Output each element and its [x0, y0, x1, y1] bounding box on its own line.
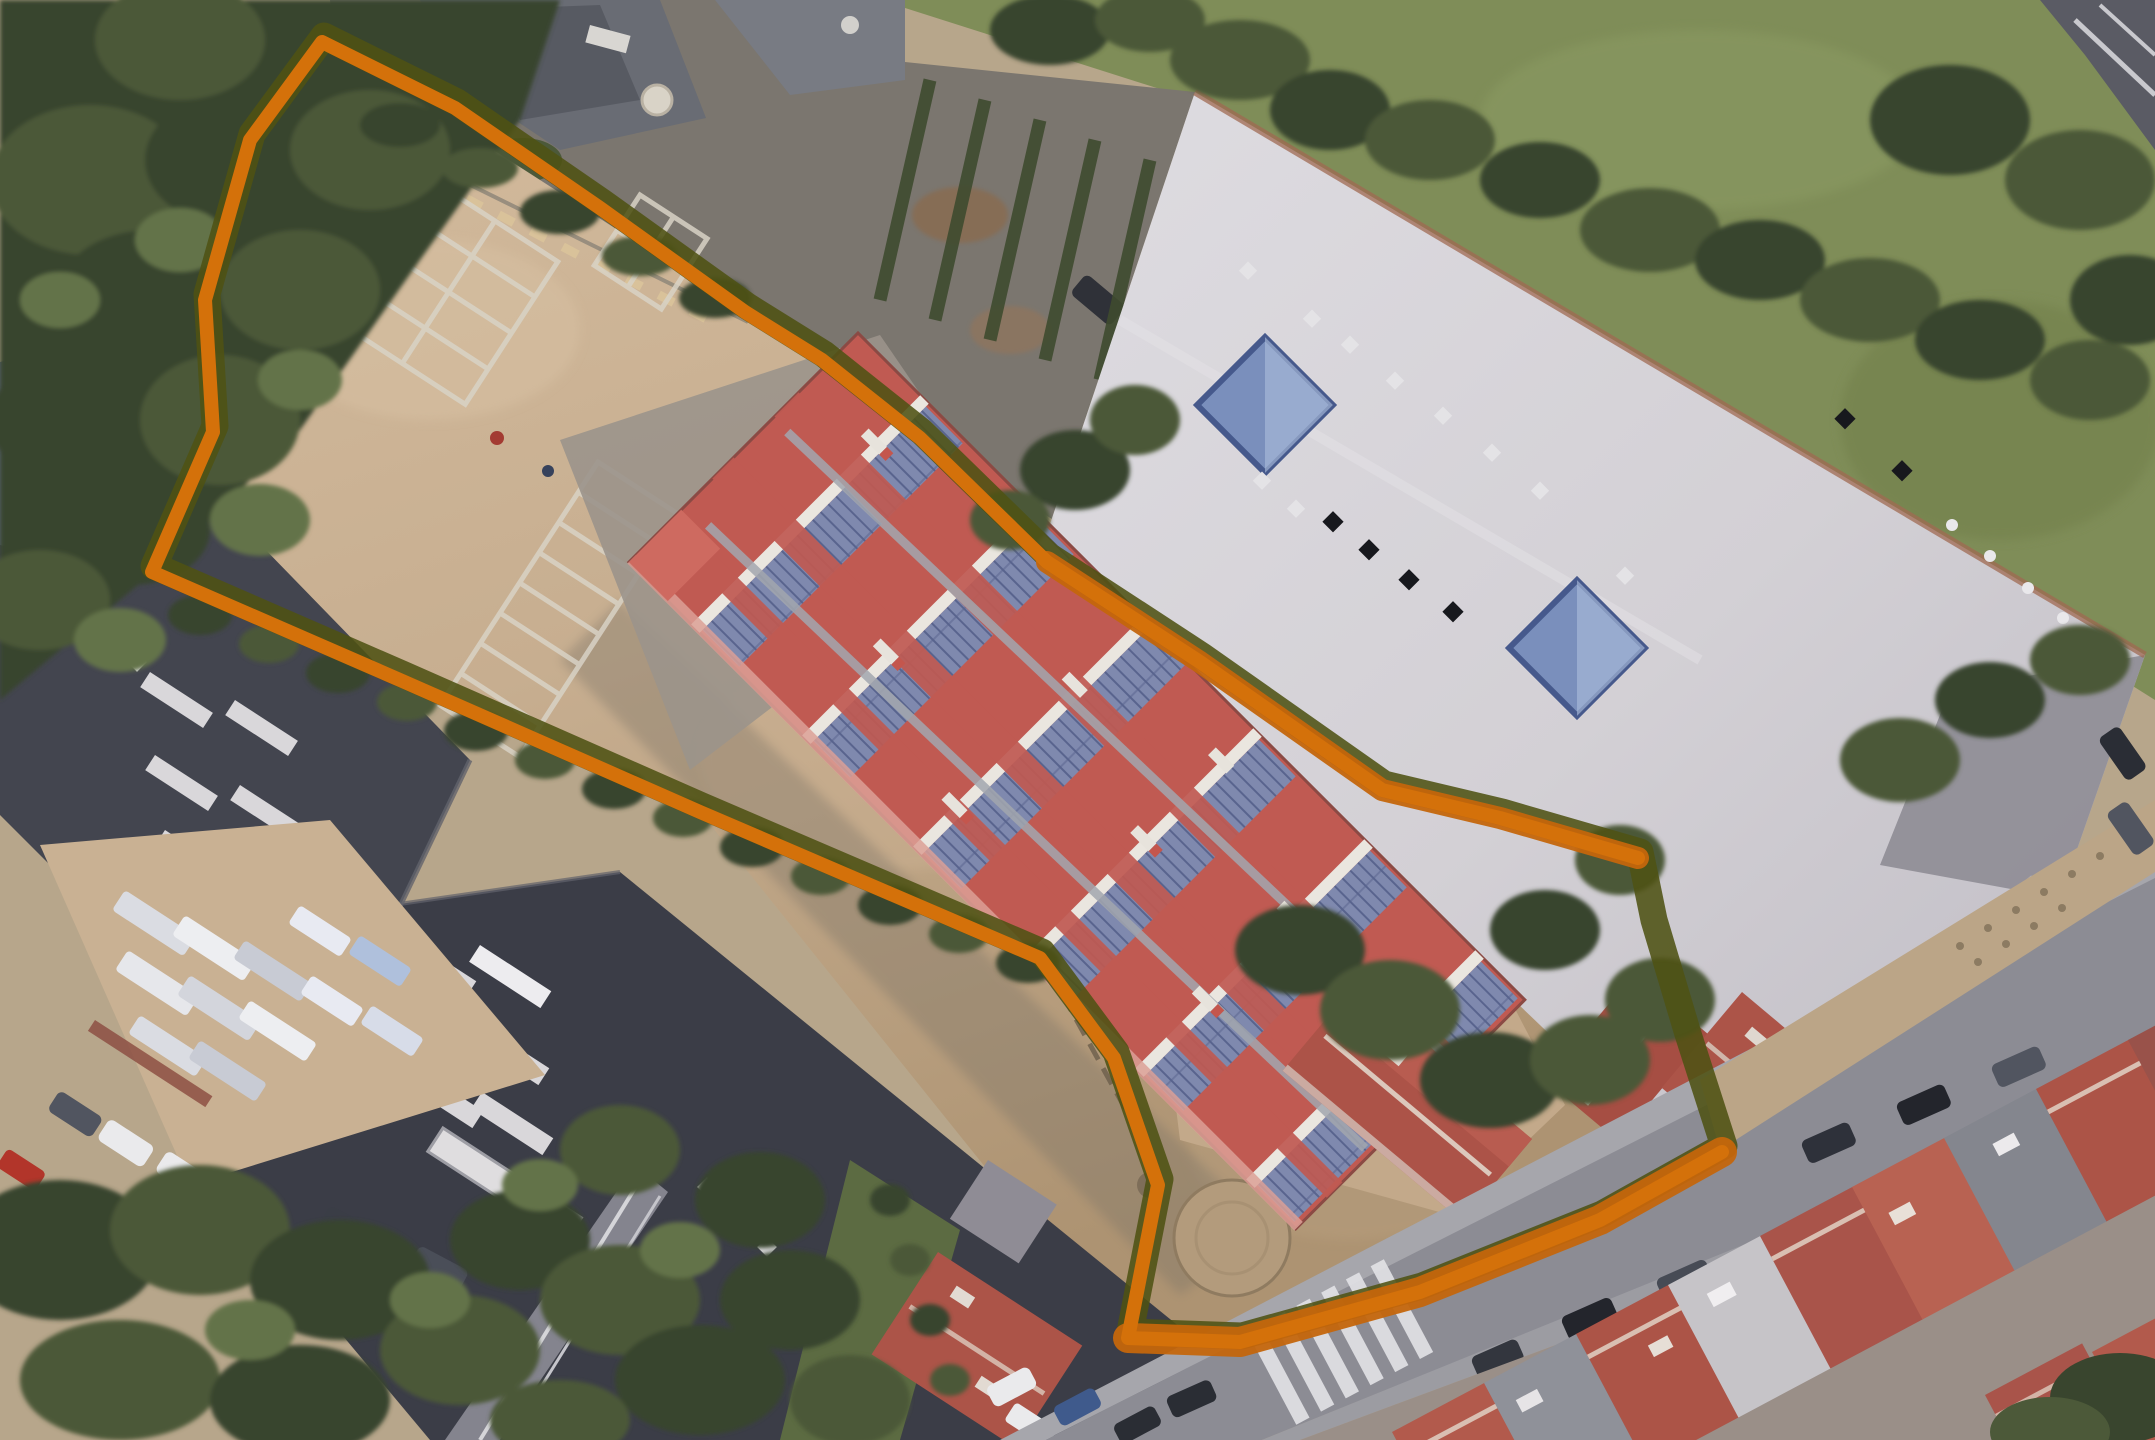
map-canvas[interactable]: aerial-property-view: [0, 0, 2155, 1440]
fountain: [642, 85, 672, 115]
aerial-image: aerial-property-view: [0, 0, 2155, 1440]
